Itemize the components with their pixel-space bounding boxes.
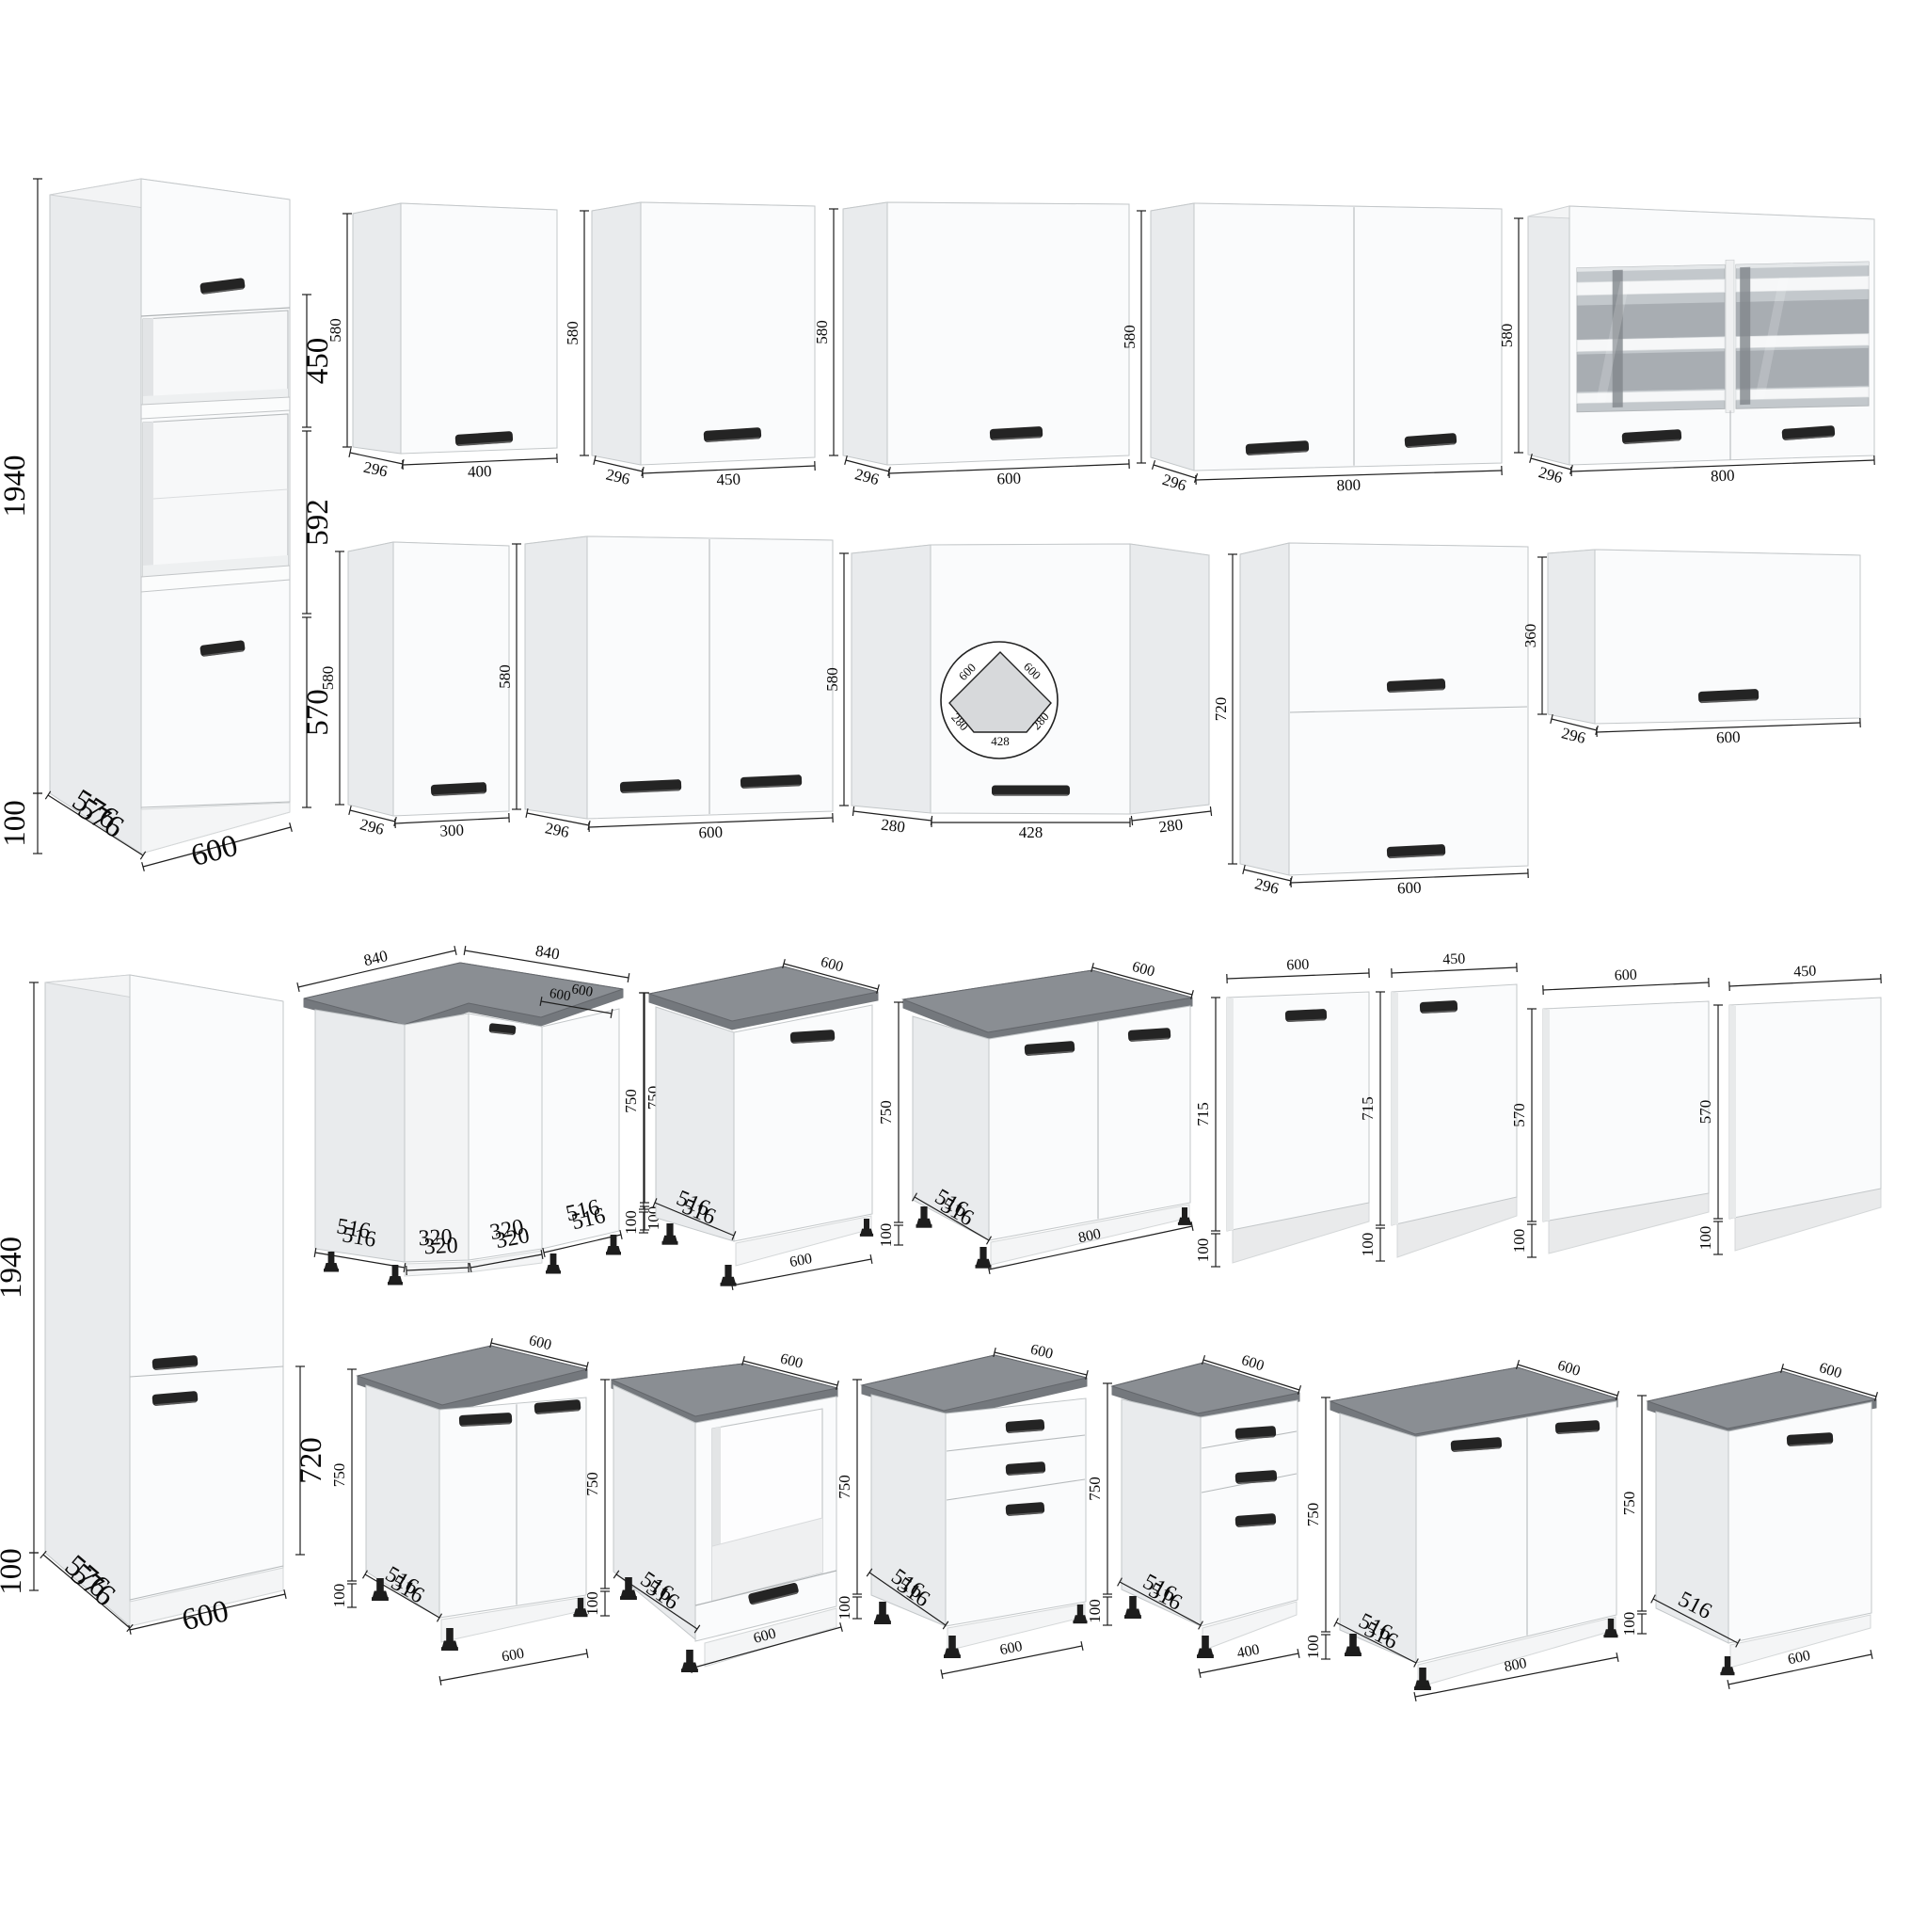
- svg-text:750: 750: [836, 1475, 853, 1499]
- svg-text:600: 600: [1286, 957, 1310, 974]
- svg-text:320: 320: [423, 1234, 458, 1260]
- svg-text:100: 100: [1194, 1238, 1212, 1263]
- svg-text:715: 715: [1359, 1096, 1377, 1121]
- svg-text:450: 450: [716, 470, 741, 488]
- svg-text:580: 580: [823, 667, 841, 692]
- svg-text:750: 750: [622, 1089, 640, 1113]
- svg-text:100: 100: [0, 800, 32, 847]
- svg-text:580: 580: [496, 664, 514, 689]
- svg-text:450: 450: [301, 338, 335, 385]
- svg-text:300: 300: [439, 821, 464, 839]
- svg-text:100: 100: [836, 1596, 853, 1621]
- svg-text:580: 580: [319, 666, 337, 691]
- svg-text:580: 580: [564, 321, 581, 345]
- svg-text:580: 580: [813, 320, 831, 344]
- svg-text:750: 750: [583, 1472, 601, 1496]
- svg-text:100: 100: [330, 1584, 348, 1608]
- svg-text:715: 715: [1194, 1102, 1212, 1126]
- svg-text:750: 750: [1086, 1477, 1104, 1501]
- svg-text:580: 580: [1498, 324, 1516, 348]
- svg-text:428: 428: [991, 734, 1010, 748]
- svg-text:750: 750: [330, 1463, 348, 1488]
- svg-text:100: 100: [877, 1223, 895, 1248]
- svg-text:100: 100: [1510, 1229, 1528, 1253]
- svg-text:750: 750: [1620, 1492, 1638, 1516]
- svg-text:580: 580: [326, 318, 344, 343]
- svg-text:450: 450: [1442, 950, 1466, 967]
- svg-text:600: 600: [996, 470, 1021, 488]
- svg-text:600: 600: [1397, 879, 1422, 898]
- svg-text:100: 100: [0, 1548, 28, 1595]
- svg-text:720: 720: [1212, 697, 1230, 722]
- svg-text:720: 720: [295, 1437, 328, 1484]
- svg-text:600: 600: [698, 823, 723, 842]
- svg-text:750: 750: [1304, 1503, 1322, 1527]
- svg-text:100: 100: [583, 1591, 601, 1616]
- svg-text:100: 100: [622, 1210, 640, 1235]
- svg-text:1940: 1940: [0, 1237, 28, 1299]
- svg-text:570: 570: [1510, 1103, 1528, 1127]
- svg-text:428: 428: [1019, 823, 1043, 841]
- svg-text:100: 100: [1620, 1612, 1638, 1637]
- svg-text:450: 450: [1793, 963, 1817, 980]
- svg-text:280: 280: [1158, 816, 1185, 837]
- svg-text:592: 592: [301, 499, 335, 546]
- svg-text:100: 100: [1359, 1233, 1377, 1257]
- svg-text:570: 570: [301, 689, 335, 736]
- svg-text:750: 750: [877, 1100, 895, 1125]
- svg-text:600: 600: [1614, 966, 1637, 983]
- svg-text:280: 280: [880, 816, 906, 837]
- svg-text:100: 100: [1304, 1635, 1322, 1659]
- svg-text:800: 800: [1336, 476, 1361, 495]
- svg-text:570: 570: [1696, 1100, 1714, 1125]
- svg-text:800: 800: [1711, 467, 1735, 486]
- svg-text:580: 580: [1121, 325, 1139, 349]
- svg-text:100: 100: [1696, 1226, 1714, 1251]
- svg-text:100: 100: [1086, 1599, 1104, 1623]
- svg-text:360: 360: [1521, 624, 1539, 648]
- svg-text:1940: 1940: [0, 455, 32, 518]
- svg-text:600: 600: [1716, 728, 1741, 747]
- svg-text:400: 400: [468, 462, 492, 481]
